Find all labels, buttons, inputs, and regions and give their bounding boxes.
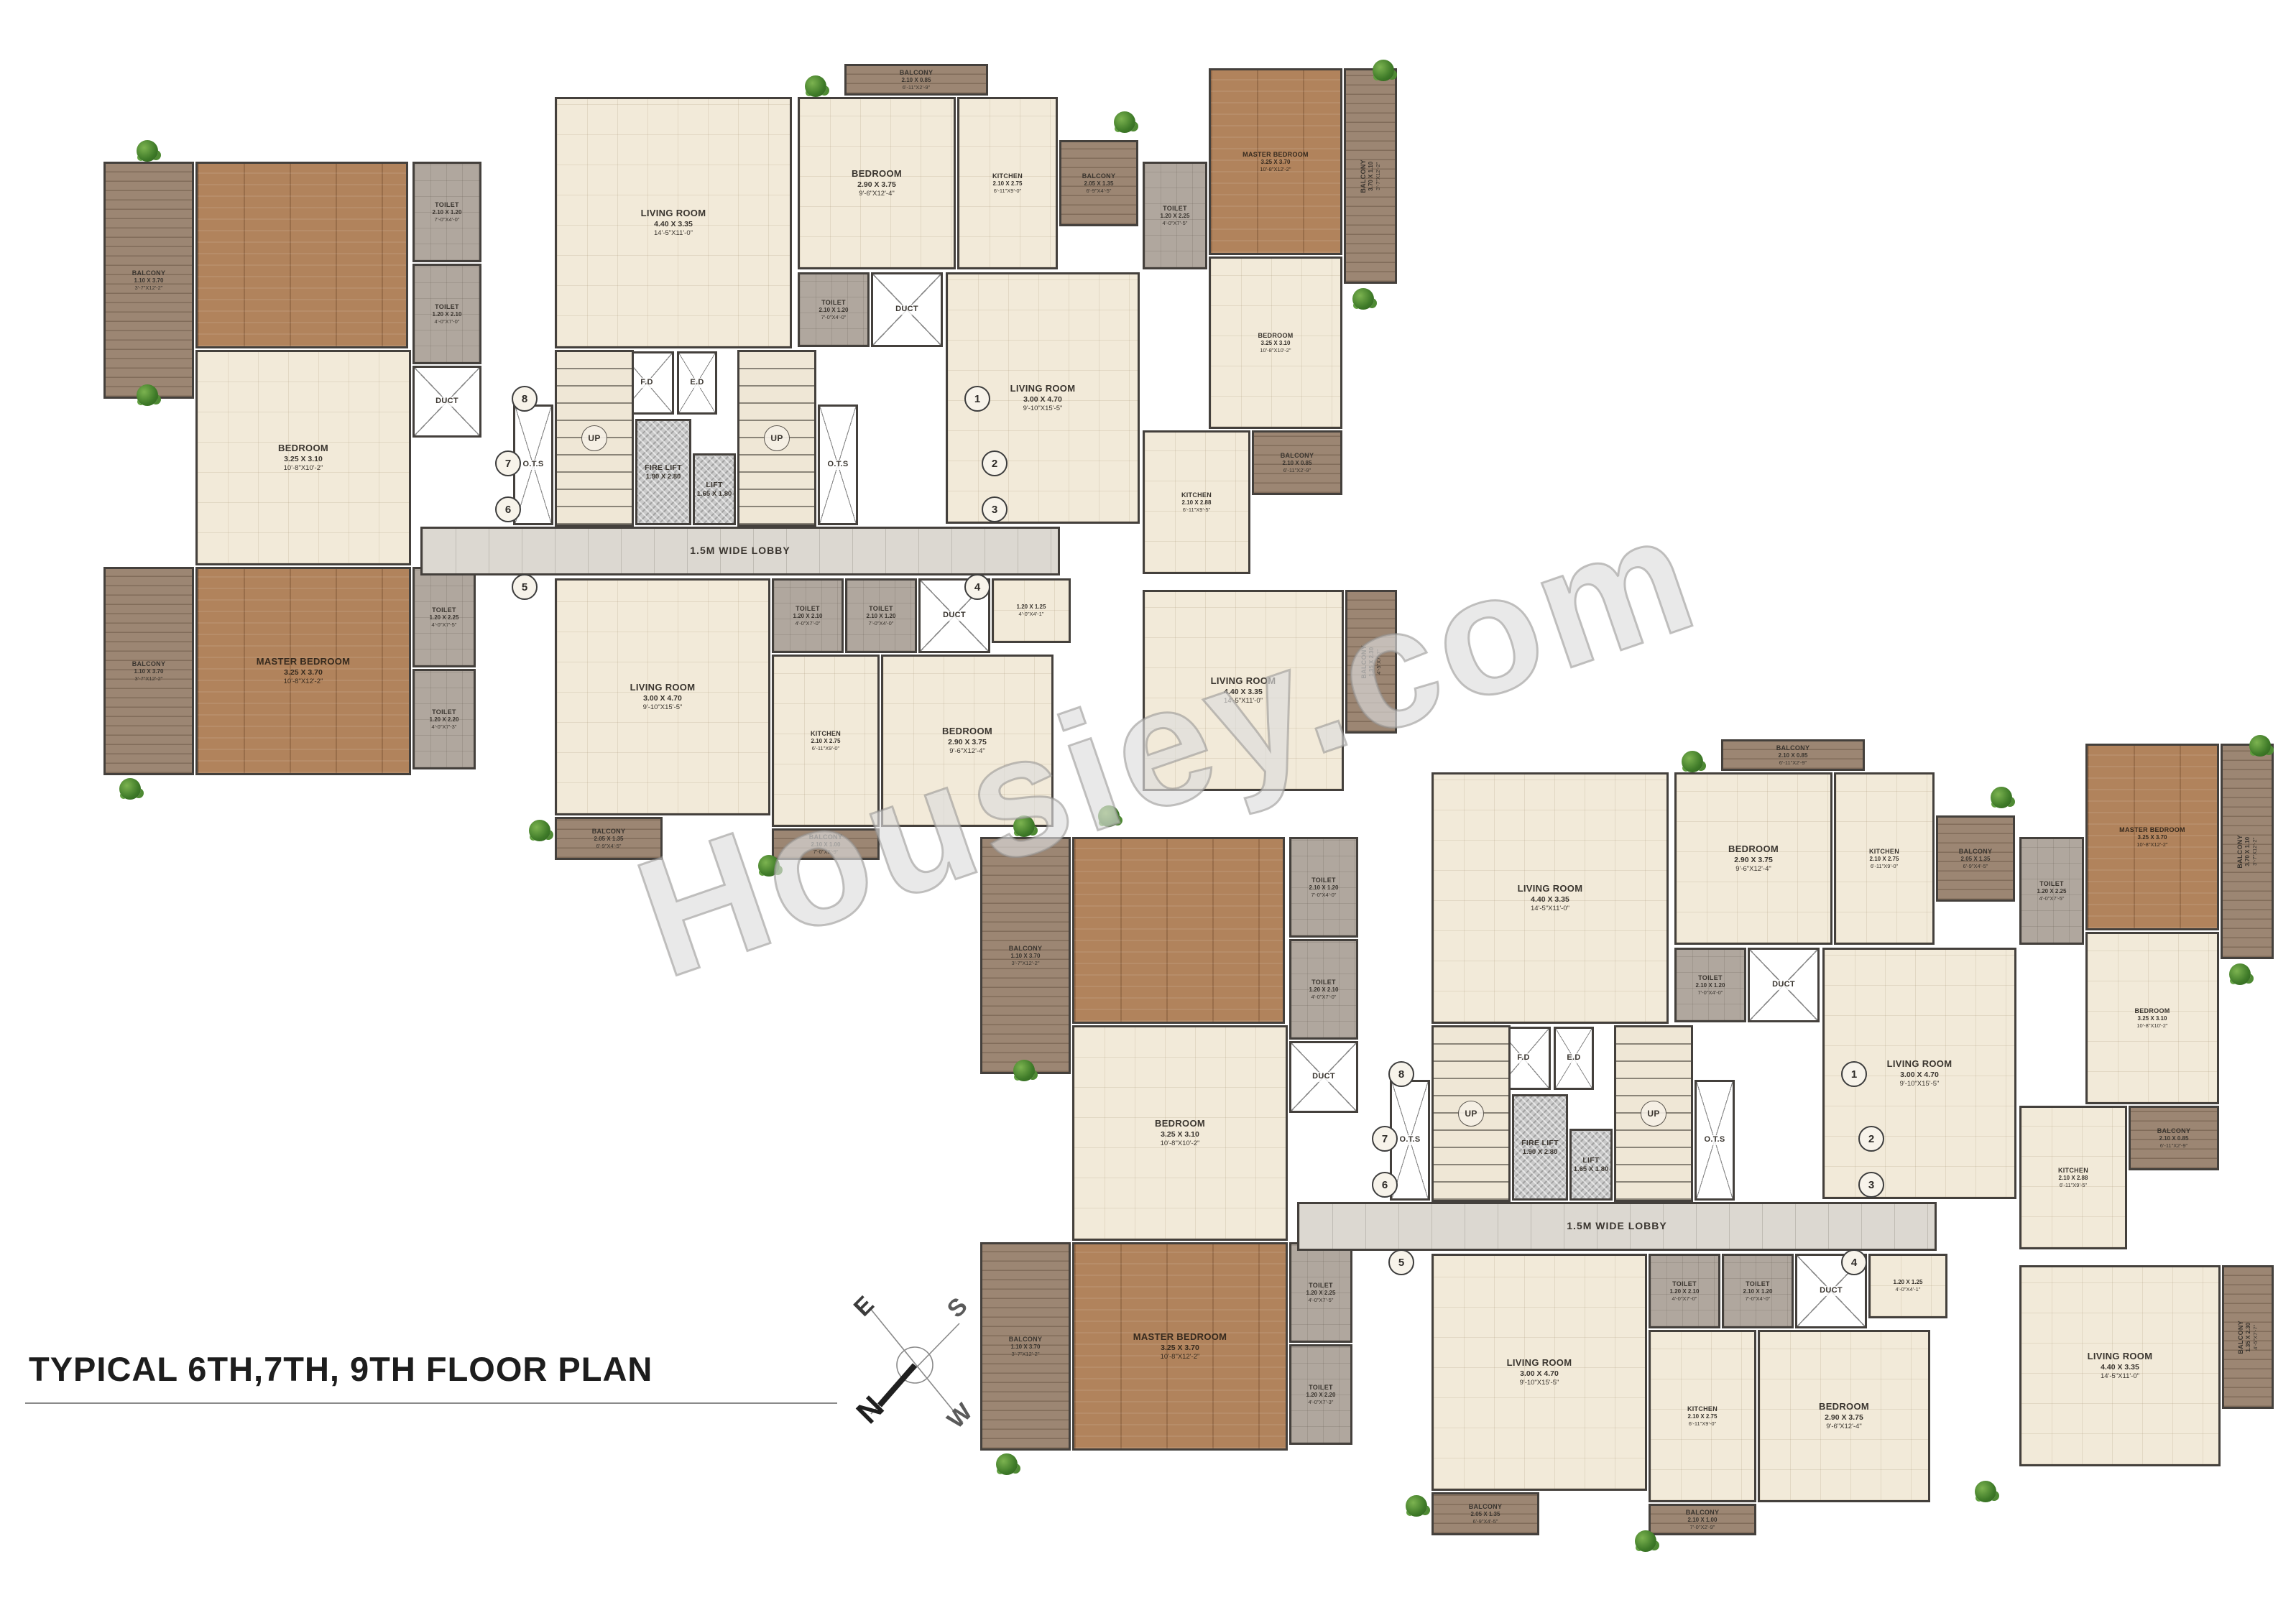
wing-top-left-balcony-right-2-ft: 6'-11"X2'-9" <box>1281 467 1314 473</box>
compass-rose: E S N W <box>848 1293 985 1437</box>
wing-top-left-bedroom-center-top-m: 2.90 X 3.75 <box>852 180 902 190</box>
wing-bottom-right-kitchen-right-label: KITCHEN2.10 X 2.886'-11"X9'-5" <box>2058 1167 2088 1189</box>
wing-bottom-right-toilet-left-3-ft: 4'-0"X7'-5" <box>1306 1297 1336 1303</box>
wing-bottom-right-bedroom-right-m: 3.25 X 3.10 <box>2134 1015 2170 1022</box>
wing-bottom-right-toilet-bottom-2-label: TOILET2.10 X 1.207'-0"X4'-0" <box>1743 1280 1773 1303</box>
wing-bottom-right-toilet-center-top-name: TOILET <box>1696 974 1725 982</box>
wing-top-left-toilet-bottom-1-name: TOILET <box>793 605 823 613</box>
wing-bottom-right-balcony-top-left: BALCONY1.10 X 3.703'-7"X12'-2" <box>980 837 1071 1074</box>
wing-bottom-right-master-bedroom-right-m: 3.25 X 3.70 <box>2119 834 2185 841</box>
wing-top-left-duct-left-name: DUCT <box>434 397 460 407</box>
wing-top-left-living-room-right-bottom-m: 4.40 X 3.35 <box>1211 688 1276 697</box>
wing-top-left-toilet-left-1-ft: 7'-0"X4'-0" <box>433 216 462 223</box>
wing-top-left-bedroom-center-top-label: BEDROOM2.90 X 3.759'-6"X12'-4" <box>852 168 902 198</box>
wing-bottom-right-master-bedroom-top-left <box>1072 837 1285 1024</box>
wing-bottom-right-bedroom-left-ft: 10'-8"X10'-2" <box>1155 1139 1205 1148</box>
wing-top-left-toilet-left-2-ft: 4'-0"X7'-0" <box>433 318 462 325</box>
wing-top-left-balcony-right-1-m: 3.70 X 1.10 <box>1368 159 1375 193</box>
wing-bottom-right-plant-icon-1 <box>1013 815 1035 837</box>
wing-bottom-right-toilet-bottom-2: TOILET2.10 X 1.207'-0"X4'-0" <box>1722 1254 1794 1328</box>
wing-top-left-ots-right: O.T.S <box>818 404 858 525</box>
wing-bottom-right-toilet-left-2-m: 1.20 X 2.10 <box>1309 986 1339 994</box>
wing-bottom-right-toilet-bottom-1: TOILET1.20 X 2.104'-0"X7'-0" <box>1649 1254 1720 1328</box>
wing-bottom-right-plant-icon-7 <box>1975 1481 1996 1502</box>
wing-bottom-right-staircase-right-label: UP <box>1641 1101 1666 1127</box>
wing-top-left-toilet-left-3-m: 1.20 X 2.25 <box>430 614 459 621</box>
wing-top-left-toilet-left-2: TOILET1.20 X 2.104'-0"X7'-0" <box>412 264 481 364</box>
wing-bottom-right-toilet-bottom-1-m: 1.20 X 2.10 <box>1670 1288 1700 1295</box>
wing-bottom-right-balcony-bottom-2: BALCONY2.05 X 1.356'-9"X4'-5" <box>1431 1492 1539 1535</box>
wing-top-left-toilet-bottom-1: TOILET1.20 X 2.104'-0"X7'-0" <box>772 578 844 653</box>
wing-top-left-living-room-right-bottom-name: LIVING ROOM <box>1211 675 1276 687</box>
wing-bottom-right-toilet-left-2-ft: 4'-0"X7'-0" <box>1309 994 1339 1000</box>
wing-top-left-toilet-left-3-name: TOILET <box>430 606 459 614</box>
wing-top-left-duct-left-label: DUCT <box>434 397 460 407</box>
wing-bottom-right-passage-bottom-m: 1.20 X 1.25 <box>1894 1279 1923 1286</box>
wing-bottom-right-balcony-top-left-label: BALCONY1.10 X 3.703'-7"X12'-2" <box>1009 945 1043 967</box>
wing-bottom-right-bedroom-center-top-m: 2.90 X 3.75 <box>1728 856 1779 865</box>
wing-bottom-right-living-room-top-m: 4.40 X 3.35 <box>1518 895 1583 905</box>
wing-top-left-toilet-left-4-name: TOILET <box>430 708 459 716</box>
wing-top-left-plant-icon-7 <box>1098 805 1120 827</box>
wing-top-left-unit-8: 8 <box>512 386 538 412</box>
wing-bottom-right-unit-1: 1 <box>1841 1061 1867 1087</box>
wing-top-left-ed-shaft-label: E.D <box>688 378 705 388</box>
wing-bottom-right-toilet-left-4-name: TOILET <box>1306 1384 1336 1392</box>
wing-bottom-right-toilet-bottom-1-ft: 4'-0"X7'-0" <box>1670 1295 1700 1302</box>
wing-bottom-right-bedroom-center-top-ft: 9'-6"X12'-4" <box>1728 865 1779 874</box>
wing-bottom-right-ots-right-name: O.T.S <box>1702 1135 1726 1145</box>
wing-bottom-right-lobby-name: 1.5M WIDE LOBBY <box>1567 1220 1666 1233</box>
wing-bottom-right-balcony-right-1-label: BALCONY3.70 X 1.103'-7"X12'-2" <box>2236 835 2259 869</box>
wing-top-left-balcony-bottom-left-label: BALCONY1.10 X 3.703'-7"X12'-2" <box>132 660 166 683</box>
wing-top-left-balcony-center-top-ft: 6'-11"X2'-9" <box>900 84 933 91</box>
wing-bottom-right-bedroom-left-m: 3.25 X 3.10 <box>1155 1130 1205 1139</box>
wing-top-left-master-bedroom-right-label: MASTER BEDROOM3.25 X 3.7010'-8"X12'-2" <box>1242 151 1309 173</box>
wing-bottom-right-bedroom-left-name: BEDROOM <box>1155 1118 1205 1129</box>
wing-top-left-balcony-bottom-left-m: 1.10 X 3.70 <box>132 668 166 675</box>
wing-bottom-right-unit-7: 7 <box>1372 1126 1398 1152</box>
wing-bottom-right-toilet-left-1-m: 2.10 X 1.20 <box>1309 884 1339 892</box>
wing-bottom-right-unit-3: 3 <box>1858 1172 1884 1198</box>
wing-bottom-right-kitchen-bottom: KITCHEN2.10 X 2.756'-11"X9'-0" <box>1649 1330 1756 1502</box>
wing-bottom-right-living-room-bottom-ft: 9'-10"X15'-5" <box>1507 1379 1572 1387</box>
wing-bottom-right-toilet-left-4-m: 1.20 X 2.20 <box>1306 1392 1336 1399</box>
wing-bottom-right-duct-center-top-label: DUCT <box>1771 980 1797 990</box>
wing-bottom-right-living-room-right-top-name: LIVING ROOM <box>1887 1058 1952 1070</box>
wing-top-left-kitchen-right-label: KITCHEN2.10 X 2.886'-11"X9'-5" <box>1181 491 1212 514</box>
wing-top-left-bedroom-right-name: BEDROOM <box>1258 332 1293 340</box>
wing-top-left-living-room-right-top-name: LIVING ROOM <box>1010 383 1076 394</box>
wing-bottom-right-kitchen-right-name: KITCHEN <box>2058 1167 2088 1175</box>
wing-top-left-plant-icon-1 <box>137 140 158 162</box>
wing-bottom-right-kitchen-bottom-m: 2.10 X 2.75 <box>1687 1413 1718 1420</box>
wing-top-left-balcony-bottom-2-label: BALCONY2.05 X 1.356'-9"X4'-5" <box>592 828 626 850</box>
wing-bottom-right-balcony-center-top-2: BALCONY2.05 X 1.356'-9"X4'-5" <box>1936 815 2015 902</box>
wing-top-left-toilet-center-top-m: 2.10 X 1.20 <box>819 307 849 314</box>
wing-top-left-plant-icon-3 <box>805 75 826 97</box>
compass-line-ew <box>870 1308 963 1423</box>
wing-bottom-right-duct-center-top: DUCT <box>1748 948 1820 1022</box>
wing-top-left-master-bedroom-right-m: 3.25 X 3.70 <box>1242 159 1309 166</box>
wing-bottom-right-balcony-bottom-2-m: 2.05 X 1.35 <box>1469 1511 1503 1518</box>
wing-bottom-right-ed-shaft-label: E.D <box>1565 1053 1582 1063</box>
wing-top-left-unit-2: 2 <box>982 450 1008 476</box>
wing-bottom-right-plant-icon-4 <box>1991 787 2012 808</box>
wing-top-left-toilet-bottom-2-name: TOILET <box>867 605 896 613</box>
wing-top-left-master-bedroom-bottom-left-m: 3.25 X 3.70 <box>257 668 351 678</box>
wing-top-left-toilet-left-1: TOILET2.10 X 1.207'-0"X4'-0" <box>412 162 481 262</box>
wing-top-left-ots-right-name: O.T.S <box>826 460 849 470</box>
wing-top-left-living-room-top-label: LIVING ROOM4.40 X 3.3514'-5"X11'-0" <box>641 208 706 237</box>
wing-top-left-staircase-left-label: UP <box>581 425 607 451</box>
wing-bottom-right-balcony-right-3-name: BALCONY <box>2237 1321 2245 1354</box>
wing-top-left-fire-lift-name: FIRE LIFT <box>645 463 682 473</box>
wing-bottom-right-ots-right: O.T.S <box>1695 1080 1735 1201</box>
wing-bottom-right-toilet-left-1: TOILET2.10 X 1.207'-0"X4'-0" <box>1289 837 1358 938</box>
wing-top-left-balcony-right-2-m: 2.10 X 0.85 <box>1281 460 1314 467</box>
wing-top-left-lobby: 1.5M WIDE LOBBY <box>420 527 1060 575</box>
wing-bottom-right-ots-left-label: O.T.S <box>1398 1135 1421 1145</box>
wing-top-left-bedroom-left: BEDROOM3.25 X 3.1010'-8"X10'-2" <box>195 350 411 565</box>
wing-bottom-right-living-room-right-bottom-ft: 14'-5"X11'-0" <box>2088 1372 2153 1381</box>
wing-top-left-balcony-bottom-2-m: 2.05 X 1.35 <box>592 836 626 843</box>
wing-top-left-toilet-center-top-ft: 7'-0"X4'-0" <box>819 314 849 320</box>
wing-top-left-balcony-right-2: BALCONY2.10 X 0.856'-11"X2'-9" <box>1252 430 1342 495</box>
wing-top-left-passage-bottom-ft: 4'-0"X4'-1" <box>1017 611 1046 617</box>
wing-bottom-right-kitchen-center-top-name: KITCHEN <box>1869 848 1899 856</box>
wing-bottom-right-toilet-left-3-m: 1.20 X 2.25 <box>1306 1290 1336 1297</box>
wing-bottom-right-staircase-left-label: UP <box>1458 1101 1484 1127</box>
wing-bottom-right-living-room-bottom-m: 3.00 X 4.70 <box>1507 1369 1572 1379</box>
wing-top-left-kitchen-right-ft: 6'-11"X9'-5" <box>1181 507 1212 513</box>
wing-bottom-right-bedroom-left: BEDROOM3.25 X 3.1010'-8"X10'-2" <box>1072 1025 1288 1241</box>
wing-top-left-master-bedroom-bottom-left-name: MASTER BEDROOM <box>257 656 351 667</box>
wing-bottom-right-plant-icon-10 <box>2229 963 2251 985</box>
wing-top-left-bedroom-left-label: BEDROOM3.25 X 3.1010'-8"X10'-2" <box>278 443 328 472</box>
wing-bottom-right-duct-bottom-label: DUCT <box>1818 1286 1844 1296</box>
wing-bottom-right-plant-icon-2 <box>1013 1060 1035 1081</box>
wing-bottom-right-lift-label: LIFT1.65 X 1.80 <box>1574 1156 1609 1174</box>
wing-bottom-right-ed-shaft-name: E.D <box>1565 1053 1582 1063</box>
wing-bottom-right-balcony-right-1-ft: 3'-7"X12'-2" <box>2251 835 2258 869</box>
wing-bottom-right-balcony-bottom-1-name: BALCONY <box>1686 1509 1720 1517</box>
wing-bottom-right-kitchen-bottom-ft: 6'-11"X9'-0" <box>1687 1420 1718 1427</box>
wing-bottom-right-plant-icon-8 <box>996 1453 1018 1475</box>
wing-top-left-balcony-right-1-name: BALCONY <box>1360 159 1368 193</box>
wing-top-left-toilet-left-4-ft: 4'-0"X7'-3" <box>430 723 459 730</box>
wing-bottom-right-toilet-left-3: TOILET1.20 X 2.254'-0"X7'-5" <box>1289 1242 1352 1343</box>
wing-top-left-toilet-bottom-2-label: TOILET2.10 X 1.207'-0"X4'-0" <box>867 605 896 627</box>
wing-top-left-bedroom-left-ft: 10'-8"X10'-2" <box>278 464 328 473</box>
wing-top-left-passage-bottom: 1.20 X 1.254'-0"X4'-1" <box>992 578 1071 643</box>
wing-bottom-right-kitchen-bottom-label: KITCHEN2.10 X 2.756'-11"X9'-0" <box>1687 1405 1718 1428</box>
wing-top-left-living-room-bottom-ft: 9'-10"X15'-5" <box>630 703 696 712</box>
wing-bottom-right-balcony-right-2-label: BALCONY2.10 X 0.856'-11"X2'-9" <box>2157 1127 2191 1150</box>
wing-top-left-balcony-right-1: BALCONY3.70 X 1.103'-7"X12'-2" <box>1344 68 1397 284</box>
wing-top-left-kitchen-right-m: 2.10 X 2.88 <box>1181 499 1212 507</box>
wing-bottom-right-kitchen-right-ft: 6'-11"X9'-5" <box>2058 1182 2088 1188</box>
wing-bottom-right-unit-5: 5 <box>1388 1249 1414 1275</box>
wing-top-left-kitchen-center-top-label: KITCHEN2.10 X 2.756'-11"X9'-0" <box>992 172 1023 195</box>
wing-top-left-toilet-center-top-name: TOILET <box>819 299 849 307</box>
wing-top-left-kitchen-center-top-m: 2.10 X 2.75 <box>992 180 1023 188</box>
wing-top-left-balcony-bottom-1-m: 2.10 X 1.00 <box>809 841 843 849</box>
wing-bottom-right-balcony-right-2: BALCONY2.10 X 0.856'-11"X2'-9" <box>2129 1106 2219 1170</box>
wing-top-left-balcony-bottom-1: BALCONY2.10 X 1.007'-0"X2'-9" <box>772 828 880 860</box>
wing-bottom-right-fire-lift-label: FIRE LIFT1.90 X 2.80 <box>1521 1139 1559 1157</box>
wing-bottom-right-balcony-center-top-label: BALCONY2.10 X 0.856'-11"X2'-9" <box>1776 744 1810 767</box>
wing-top-left-toilet-center-top: TOILET2.10 X 1.207'-0"X4'-0" <box>798 272 870 347</box>
wing-top-left-toilet-left-4-label: TOILET1.20 X 2.204'-0"X7'-3" <box>430 708 459 731</box>
wing-top-left-duct-bottom-name: DUCT <box>941 611 967 621</box>
wing-bottom-right-balcony-bottom-1-ft: 7'-0"X2'-9" <box>1686 1524 1720 1530</box>
wing-bottom-right-living-room-bottom: LIVING ROOM3.00 X 4.709'-10"X15'-5" <box>1431 1254 1647 1491</box>
wing-bottom-right-unit-6: 6 <box>1372 1172 1398 1198</box>
wing-top-left-balcony-center-top-2: BALCONY2.05 X 1.356'-9"X4'-5" <box>1059 140 1138 226</box>
wing-bottom-right-toilet-left-3-name: TOILET <box>1306 1282 1336 1290</box>
title-block: TYPICAL 6TH,7TH, 9TH FLOOR PLAN <box>29 1349 653 1389</box>
wing-top-left-kitchen-center-top: KITCHEN2.10 X 2.756'-11"X9'-0" <box>957 97 1058 269</box>
wing-bottom-right-balcony-center-top-2-name: BALCONY <box>1959 848 1993 856</box>
wing-top-left-balcony-top-left: BALCONY1.10 X 3.703'-7"X12'-2" <box>103 162 194 399</box>
wing-bottom-right-balcony-center-top: BALCONY2.10 X 0.856'-11"X2'-9" <box>1721 739 1865 771</box>
wing-top-left-balcony-bottom-1-label: BALCONY2.10 X 1.007'-0"X2'-9" <box>809 833 843 856</box>
floor-plan-canvas: BALCONY1.10 X 3.703'-7"X12'-2"TOILET2.10… <box>0 0 2296 1623</box>
wing-top-left-master-bedroom-bottom-left-ft: 10'-8"X12'-2" <box>257 678 351 686</box>
wing-bottom-right-balcony-right-3: BALCONY1.35 X 2.304'-5"X7'-7" <box>2222 1265 2274 1409</box>
wing-bottom-right-lift-m: 1.65 X 1.80 <box>1574 1165 1609 1174</box>
wing-top-left-toilet-left-3: TOILET1.20 X 2.254'-0"X7'-5" <box>412 567 476 667</box>
wing-bottom-right-unit-8: 8 <box>1388 1061 1414 1087</box>
wing-bottom-right-master-bedroom-bottom-left: MASTER BEDROOM3.25 X 3.7010'-8"X12'-2" <box>1072 1242 1288 1451</box>
wing-top-left-lobby-label: 1.5M WIDE LOBBY <box>690 545 790 558</box>
wing-top-left-master-bedroom-right-ft: 10'-8"X12'-2" <box>1242 166 1309 172</box>
wing-top-left-unit-6: 6 <box>495 496 521 522</box>
wing-top-left-kitchen-right: KITCHEN2.10 X 2.886'-11"X9'-5" <box>1143 430 1250 574</box>
wing-top-left-toilet-right-1-m: 1.20 X 2.25 <box>1161 213 1190 220</box>
wing-bottom-right-balcony-bottom-left-label: BALCONY1.10 X 3.703'-7"X12'-2" <box>1009 1336 1043 1358</box>
wing-bottom-right-fire-lift-m: 1.90 X 2.80 <box>1521 1148 1559 1157</box>
wing-bottom-right-toilet-bottom-2-name: TOILET <box>1743 1280 1773 1288</box>
wing-top-left-balcony-center-top-2-m: 2.05 X 1.35 <box>1082 180 1116 188</box>
wing-bottom-right-balcony-bottom-1: BALCONY2.10 X 1.007'-0"X2'-9" <box>1649 1504 1756 1535</box>
wing-top-left-master-bedroom-bottom-left-label: MASTER BEDROOM3.25 X 3.7010'-8"X12'-2" <box>257 656 351 685</box>
wing-bottom-right-toilet-left-2-name: TOILET <box>1309 979 1339 986</box>
wing-bottom-right-bedroom-right-ft: 10'-8"X10'-2" <box>2134 1022 2170 1029</box>
wing-top-left-toilet-bottom-2-m: 2.10 X 1.20 <box>867 613 896 620</box>
wing-bottom-right-balcony-center-top-name: BALCONY <box>1776 744 1810 752</box>
wing-top-left-bedroom-center-top-name: BEDROOM <box>852 168 902 180</box>
wing-bottom-right-balcony-bottom-1-label: BALCONY2.10 X 1.007'-0"X2'-9" <box>1686 1509 1720 1531</box>
wing-bottom-right-duct-left-name: DUCT <box>1311 1072 1337 1082</box>
wing-bottom-right-bedroom-right-label: BEDROOM3.25 X 3.1010'-8"X10'-2" <box>2134 1007 2170 1030</box>
wing-top-left-fire-lift-m: 1.90 X 2.80 <box>645 473 682 481</box>
wing-bottom-right-bedroom-center-top-label: BEDROOM2.90 X 3.759'-6"X12'-4" <box>1728 843 1779 873</box>
wing-top-left-plant-icon-8 <box>119 778 141 800</box>
wing-top-left-bedroom-right-m: 3.25 X 3.10 <box>1258 340 1293 347</box>
wing-top-left-bedroom-center-top: BEDROOM2.90 X 3.759'-6"X12'-4" <box>798 97 956 269</box>
wing-bottom-right-bedroom-bottom-label: BEDROOM2.90 X 3.759'-6"X12'-4" <box>1819 1401 1869 1430</box>
wing-top-left-kitchen-bottom: KITCHEN2.10 X 2.756'-11"X9'-0" <box>772 655 880 827</box>
wing-bottom-right-toilet-bottom-1-name: TOILET <box>1670 1280 1700 1288</box>
wing-bottom-right-toilet-left-4-ft: 4'-0"X7'-3" <box>1306 1399 1336 1405</box>
wing-bottom-right-living-room-top-name: LIVING ROOM <box>1518 883 1583 894</box>
wing-top-left-master-bedroom-right-name: MASTER BEDROOM <box>1242 151 1309 159</box>
wing-top-left-balcony-bottom-1-name: BALCONY <box>809 833 843 841</box>
wing-bottom-right-living-room-top-ft: 14'-5"X11'-0" <box>1518 905 1583 913</box>
wing-top-left-balcony-bottom-2: BALCONY2.05 X 1.356'-9"X4'-5" <box>555 817 663 860</box>
wing-top-left-toilet-left-2-m: 1.20 X 2.10 <box>433 311 462 318</box>
wing-top-left-bedroom-right-ft: 10'-8"X10'-2" <box>1258 347 1293 353</box>
wing-bottom-right-lobby-label: 1.5M WIDE LOBBY <box>1567 1220 1666 1233</box>
wing-top-left-toilet-right-1: TOILET1.20 X 2.254'-0"X7'-5" <box>1143 162 1207 269</box>
wing-bottom-right-balcony-bottom-left-name: BALCONY <box>1009 1336 1043 1344</box>
wing-bottom-right-balcony-right-2-name: BALCONY <box>2157 1127 2191 1135</box>
wing-top-left-balcony-center-top-2-label: BALCONY2.05 X 1.356'-9"X4'-5" <box>1082 172 1116 195</box>
plan-title: TYPICAL 6TH,7TH, 9TH FLOOR PLAN <box>29 1349 653 1389</box>
wing-bottom-right-balcony-right-1-m: 3.70 X 1.10 <box>2244 835 2251 869</box>
wing-top-left-master-bedroom-top-left <box>195 162 408 348</box>
wing-bottom-right-master-bedroom-bottom-left-label: MASTER BEDROOM3.25 X 3.7010'-8"X12'-2" <box>1133 1331 1227 1361</box>
wing-top-left-fd-shaft-label: F.D <box>639 378 654 388</box>
wing-top-left-bedroom-left-name: BEDROOM <box>278 443 328 454</box>
wing-top-left-bedroom-left-m: 3.25 X 3.10 <box>278 455 328 464</box>
wing-top-left-staircase-left: UP <box>555 350 634 527</box>
wing-bottom-right-toilet-center-top-ft: 7'-0"X4'-0" <box>1696 989 1725 996</box>
wing-bottom-right-fire-lift: FIRE LIFT1.90 X 2.80 <box>1512 1094 1568 1201</box>
wing-bottom-right-balcony-top-left-name: BALCONY <box>1009 945 1043 953</box>
wing-bottom-right-master-bedroom-right-label: MASTER BEDROOM3.25 X 3.7010'-8"X12'-2" <box>2119 826 2185 849</box>
compass-label-e: E <box>849 1293 880 1322</box>
wing-top-left-toilet-right-1-ft: 4'-0"X7'-5" <box>1161 220 1190 226</box>
wing-top-left-balcony-bottom-left-ft: 3'-7"X12'-2" <box>132 675 166 682</box>
wing-top-left-ed-shaft-name: E.D <box>688 378 705 388</box>
wing-bottom-right-bedroom-right-name: BEDROOM <box>2134 1007 2170 1015</box>
wing-bottom-right-living-room-top: LIVING ROOM4.40 X 3.3514'-5"X11'-0" <box>1431 772 1669 1024</box>
wing-bottom-right-kitchen-bottom-name: KITCHEN <box>1687 1405 1718 1413</box>
wing-top-left-living-room-top: LIVING ROOM4.40 X 3.3514'-5"X11'-0" <box>555 97 792 348</box>
wing-bottom-right-plant-icon-3 <box>1682 751 1703 772</box>
wing-top-left-kitchen-bottom-m: 2.10 X 2.75 <box>811 738 841 745</box>
wing-top-left-living-room-right-bottom-label: LIVING ROOM4.40 X 3.3514'-5"X11'-0" <box>1211 675 1276 705</box>
wing-top-left-fd-shaft-name: F.D <box>639 378 654 388</box>
wing-bottom-right-staircase-left: UP <box>1431 1025 1511 1202</box>
wing-bottom-right-living-room-right-bottom-m: 4.40 X 3.35 <box>2088 1363 2153 1372</box>
wing-top-left-ots-left-label: O.T.S <box>521 460 545 470</box>
wing-bottom-right-toilet-left-1-name: TOILET <box>1309 877 1339 884</box>
wing-top-left-balcony-right-1-label: BALCONY3.70 X 1.103'-7"X12'-2" <box>1360 159 1382 193</box>
wing-top-left-plant-icon-4 <box>1114 111 1135 133</box>
wing-top-left-kitchen-right-name: KITCHEN <box>1181 491 1212 499</box>
wing-bottom-right-balcony-center-top-ft: 6'-11"X2'-9" <box>1776 759 1810 766</box>
wing-top-left-living-room-right-top-ft: 9'-10"X15'-5" <box>1010 404 1076 413</box>
wing-top-left-toilet-bottom-2: TOILET2.10 X 1.207'-0"X4'-0" <box>845 578 917 653</box>
wing-bottom-right-balcony-center-top-2-ft: 6'-9"X4'-5" <box>1959 863 1993 869</box>
wing-top-left-bedroom-right-label: BEDROOM3.25 X 3.1010'-8"X10'-2" <box>1258 332 1293 354</box>
wing-top-left-kitchen-bottom-ft: 6'-11"X9'-0" <box>811 745 841 752</box>
wing-bottom-right-toilet-right-1-label: TOILET1.20 X 2.254'-0"X7'-5" <box>2037 880 2067 902</box>
wing-bottom-right-balcony-bottom-left: BALCONY1.10 X 3.703'-7"X12'-2" <box>980 1242 1071 1451</box>
wing-bottom-right-master-bedroom-right-name: MASTER BEDROOM <box>2119 826 2185 834</box>
wing-top-left-toilet-left-2-name: TOILET <box>433 303 462 311</box>
wing-top-left-toilet-left-4: TOILET1.20 X 2.204'-0"X7'-3" <box>412 669 476 769</box>
wing-top-left-living-room-top-ft: 14'-5"X11'-0" <box>641 229 706 238</box>
wing-bottom-right-balcony-top-left-m: 1.10 X 3.70 <box>1009 953 1043 960</box>
wing-bottom-right-staircase-right-name: UP <box>1641 1101 1666 1127</box>
wing-bottom-right-toilet-left-4: TOILET1.20 X 2.204'-0"X7'-3" <box>1289 1344 1352 1445</box>
wing-bottom-right-balcony-center-top-m: 2.10 X 0.85 <box>1776 752 1810 759</box>
wing-top-left-unit-5: 5 <box>512 574 538 600</box>
wing-bottom-right-balcony-right-1-name: BALCONY <box>2236 835 2244 869</box>
wing-bottom-right-toilet-right-1: TOILET1.20 X 2.254'-0"X7'-5" <box>2019 837 2084 945</box>
wing-top-left-toilet-bottom-1-m: 1.20 X 2.10 <box>793 613 823 620</box>
compass-north-arrow <box>880 1365 915 1405</box>
wing-top-left-toilet-right-1-label: TOILET1.20 X 2.254'-0"X7'-5" <box>1161 205 1190 227</box>
wing-bottom-right-master-bedroom-bottom-left-m: 3.25 X 3.70 <box>1133 1344 1227 1353</box>
wing-top-left-balcony-bottom-2-ft: 6'-9"X4'-5" <box>592 843 626 849</box>
wing-bottom-right-balcony-right-1: BALCONY3.70 X 1.103'-7"X12'-2" <box>2221 744 2274 959</box>
wing-top-left-fire-lift: FIRE LIFT1.90 X 2.80 <box>635 419 691 525</box>
wing-top-left-balcony-top-left-ft: 3'-7"X12'-2" <box>132 285 166 291</box>
wing-bottom-right-fd-shaft-name: F.D <box>1516 1053 1531 1063</box>
wing-bottom-right-master-bedroom-bottom-left-ft: 10'-8"X12'-2" <box>1133 1353 1227 1361</box>
wing-top-left-balcony-bottom-left-name: BALCONY <box>132 660 166 668</box>
wing-bottom-right-kitchen-center-top: KITCHEN2.10 X 2.756'-11"X9'-0" <box>1834 772 1935 945</box>
wing-bottom-right-balcony-bottom-2-name: BALCONY <box>1469 1503 1503 1511</box>
wing-bottom-right-balcony-center-top-2-label: BALCONY2.05 X 1.356'-9"X4'-5" <box>1959 848 1993 870</box>
wing-top-left-living-room-right-top-m: 3.00 X 4.70 <box>1010 395 1076 404</box>
wing-bottom-right-lift: LIFT1.65 X 1.80 <box>1569 1129 1613 1201</box>
wing-bottom-right-balcony-bottom-left-m: 1.10 X 3.70 <box>1009 1344 1043 1351</box>
wing-bottom-right-balcony-bottom-1-m: 2.10 X 1.00 <box>1686 1517 1720 1524</box>
wing-top-left-unit-7: 7 <box>495 450 521 476</box>
wing-bottom-right-toilet-left-1-label: TOILET2.10 X 1.207'-0"X4'-0" <box>1309 877 1339 899</box>
wing-bottom-right-living-room-right-bottom: LIVING ROOM4.40 X 3.3514'-5"X11'-0" <box>2019 1265 2221 1466</box>
title-underline <box>25 1402 837 1404</box>
wing-top-left-lift-m: 1.65 X 1.80 <box>697 490 732 499</box>
wing-bottom-right-master-bedroom-right: MASTER BEDROOM3.25 X 3.7010'-8"X12'-2" <box>2085 744 2219 930</box>
wing-bottom-right-balcony-right-3-m: 1.35 X 2.30 <box>2245 1321 2252 1354</box>
wing-top-left-lift: LIFT1.65 X 1.80 <box>693 453 736 525</box>
wing-top-left-living-room-bottom-name: LIVING ROOM <box>630 682 696 693</box>
compass-label-s: S <box>942 1293 973 1323</box>
wing-bottom-right-bedroom-right: BEDROOM3.25 X 3.1010'-8"X10'-2" <box>2085 932 2219 1104</box>
wing-top-left-balcony-center-top-2-name: BALCONY <box>1082 172 1116 180</box>
wing-bottom-right-kitchen-center-top-m: 2.10 X 2.75 <box>1869 856 1899 863</box>
wing-top-left-balcony-center-top-name: BALCONY <box>900 69 933 77</box>
wing-bottom-right-living-room-bottom-label: LIVING ROOM3.00 X 4.709'-10"X15'-5" <box>1507 1357 1572 1387</box>
wing-top-left-staircase-right-name: UP <box>764 425 790 451</box>
wing-top-left-kitchen-bottom-name: KITCHEN <box>811 730 841 738</box>
wing-top-left-staircase-right-label: UP <box>764 425 790 451</box>
wing-bottom-right-toilet-left-2-label: TOILET1.20 X 2.104'-0"X7'-0" <box>1309 979 1339 1001</box>
wing-bottom-right-fire-lift-name: FIRE LIFT <box>1521 1139 1559 1148</box>
wing-bottom-right-kitchen-right-m: 2.10 X 2.88 <box>2058 1175 2088 1182</box>
wing-bottom-right: BALCONY1.10 X 3.703'-7"X12'-2"TOILET2.10… <box>963 729 2285 1577</box>
wing-bottom-right-toilet-left-1-ft: 7'-0"X4'-0" <box>1309 892 1339 898</box>
wing-top-left-toilet-bottom-1-ft: 4'-0"X7'-0" <box>793 620 823 626</box>
wing-bottom-right-ots-left-name: O.T.S <box>1398 1135 1421 1145</box>
wing-bottom-right-unit-4: 4 <box>1841 1249 1867 1275</box>
wing-top-left-living-room-bottom-m: 3.00 X 4.70 <box>630 694 696 703</box>
wing-bottom-right-staircase-left-name: UP <box>1458 1101 1484 1127</box>
wing-top-left-duct-center-top-name: DUCT <box>894 305 920 315</box>
wing-bottom-right-living-room-bottom-name: LIVING ROOM <box>1507 1357 1572 1369</box>
wing-top-left-plant-icon-6 <box>758 855 780 877</box>
wing-top-left-balcony-bottom-2-name: BALCONY <box>592 828 626 836</box>
wing-top-left-balcony-right-3-name: BALCONY <box>1360 645 1368 679</box>
